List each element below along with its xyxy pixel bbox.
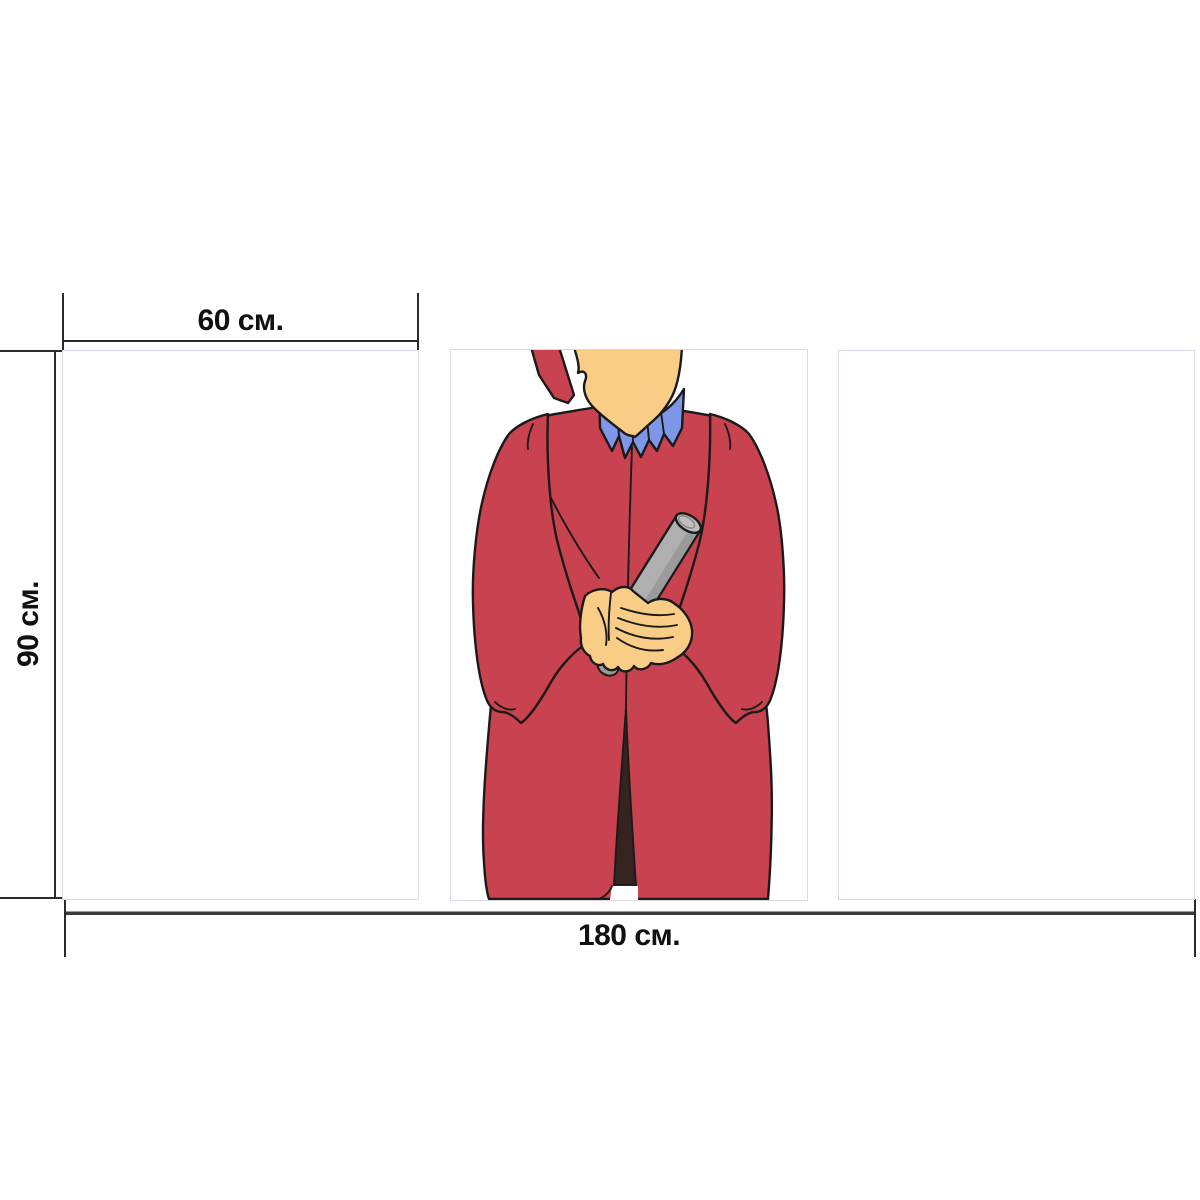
- total-width-label: 180 см.: [451, 919, 807, 953]
- graduation-tassel: [531, 350, 574, 403]
- panel-width-label: 60 см.: [62, 304, 419, 338]
- dimension-line-panel-width: [62, 340, 419, 342]
- dimension-tick: [1194, 899, 1196, 957]
- panel-height-label: 90 см.: [12, 532, 46, 716]
- dimension-line-height: [54, 351, 56, 898]
- canvas-panel-center: [451, 350, 807, 900]
- canvas-panel-left: [62, 350, 419, 900]
- dimension-tick: [0, 350, 62, 352]
- gown-opening-gap: [610, 886, 638, 900]
- triptych-canvas-mockup: 60 см. 90 см. 180 см.: [0, 0, 1200, 1200]
- graduate-illustration: [451, 350, 807, 900]
- dimension-tick: [64, 899, 66, 957]
- dimension-line-total-width: [64, 911, 1196, 915]
- dimension-tick: [0, 897, 62, 899]
- canvas-panel-right: [838, 350, 1195, 900]
